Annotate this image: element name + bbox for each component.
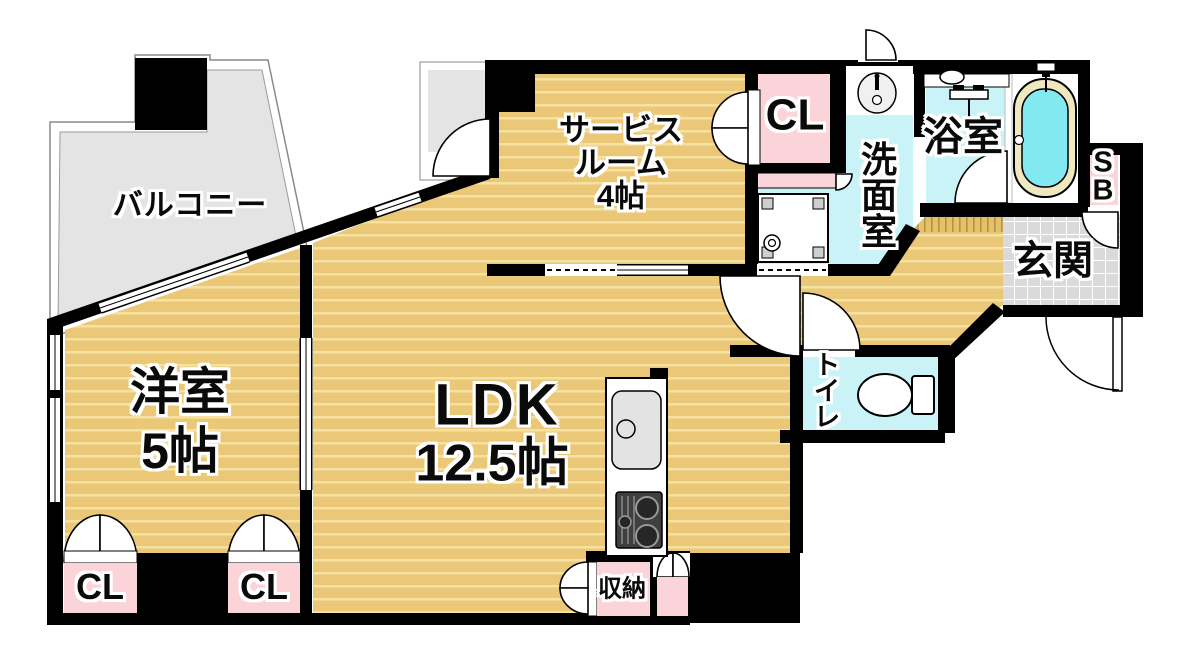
door-entrance-icon (1046, 317, 1122, 391)
room-label-western: 洋室 5帖 (130, 363, 230, 481)
room-label-shoebox: S B (1093, 149, 1114, 204)
window-service-icon (545, 264, 688, 276)
entrance-step (910, 217, 1003, 232)
closet-b-floor (228, 551, 300, 563)
toilet-icon (858, 374, 934, 416)
room-label-storage: 収納 (598, 576, 646, 601)
opening-washroom-icon (757, 264, 828, 276)
closet-a-floor (64, 551, 137, 563)
room-label-service: サービス ルーム 4帖 (559, 115, 683, 214)
room-label-closet-service: CL (766, 93, 825, 140)
room-label-ldk: LDK (434, 374, 559, 435)
floorplan: バルコニー サービス ルーム 4帖 CL 洗 面 室 浴室 S B 玄関 ト イ… (0, 0, 1178, 648)
room-label-washroom: 洗 面 室 (861, 142, 897, 250)
room-label-closet-b: CL (240, 568, 288, 606)
room-label-bathroom: 浴室 (923, 116, 1003, 158)
door-exterior-icon (858, 30, 898, 62)
kitchen-counter-icon (606, 378, 667, 556)
balcony-pillar (135, 58, 207, 130)
linen-shelf (755, 173, 836, 188)
stove-icon (616, 492, 662, 548)
room-label-closet-a: CL (76, 568, 124, 606)
room-label-toilet: ト イ レ (814, 352, 840, 430)
washbasin-icon (846, 66, 913, 115)
room-label-ldk-size: 12.5帖 (415, 436, 568, 491)
room-label-balcony: バルコニー (113, 190, 267, 222)
floorplan-drawing (0, 0, 1178, 648)
room-label-entrance: 玄関 (1013, 240, 1093, 282)
washing-machine-pan-icon (758, 194, 828, 262)
storage-box-2 (657, 577, 688, 616)
